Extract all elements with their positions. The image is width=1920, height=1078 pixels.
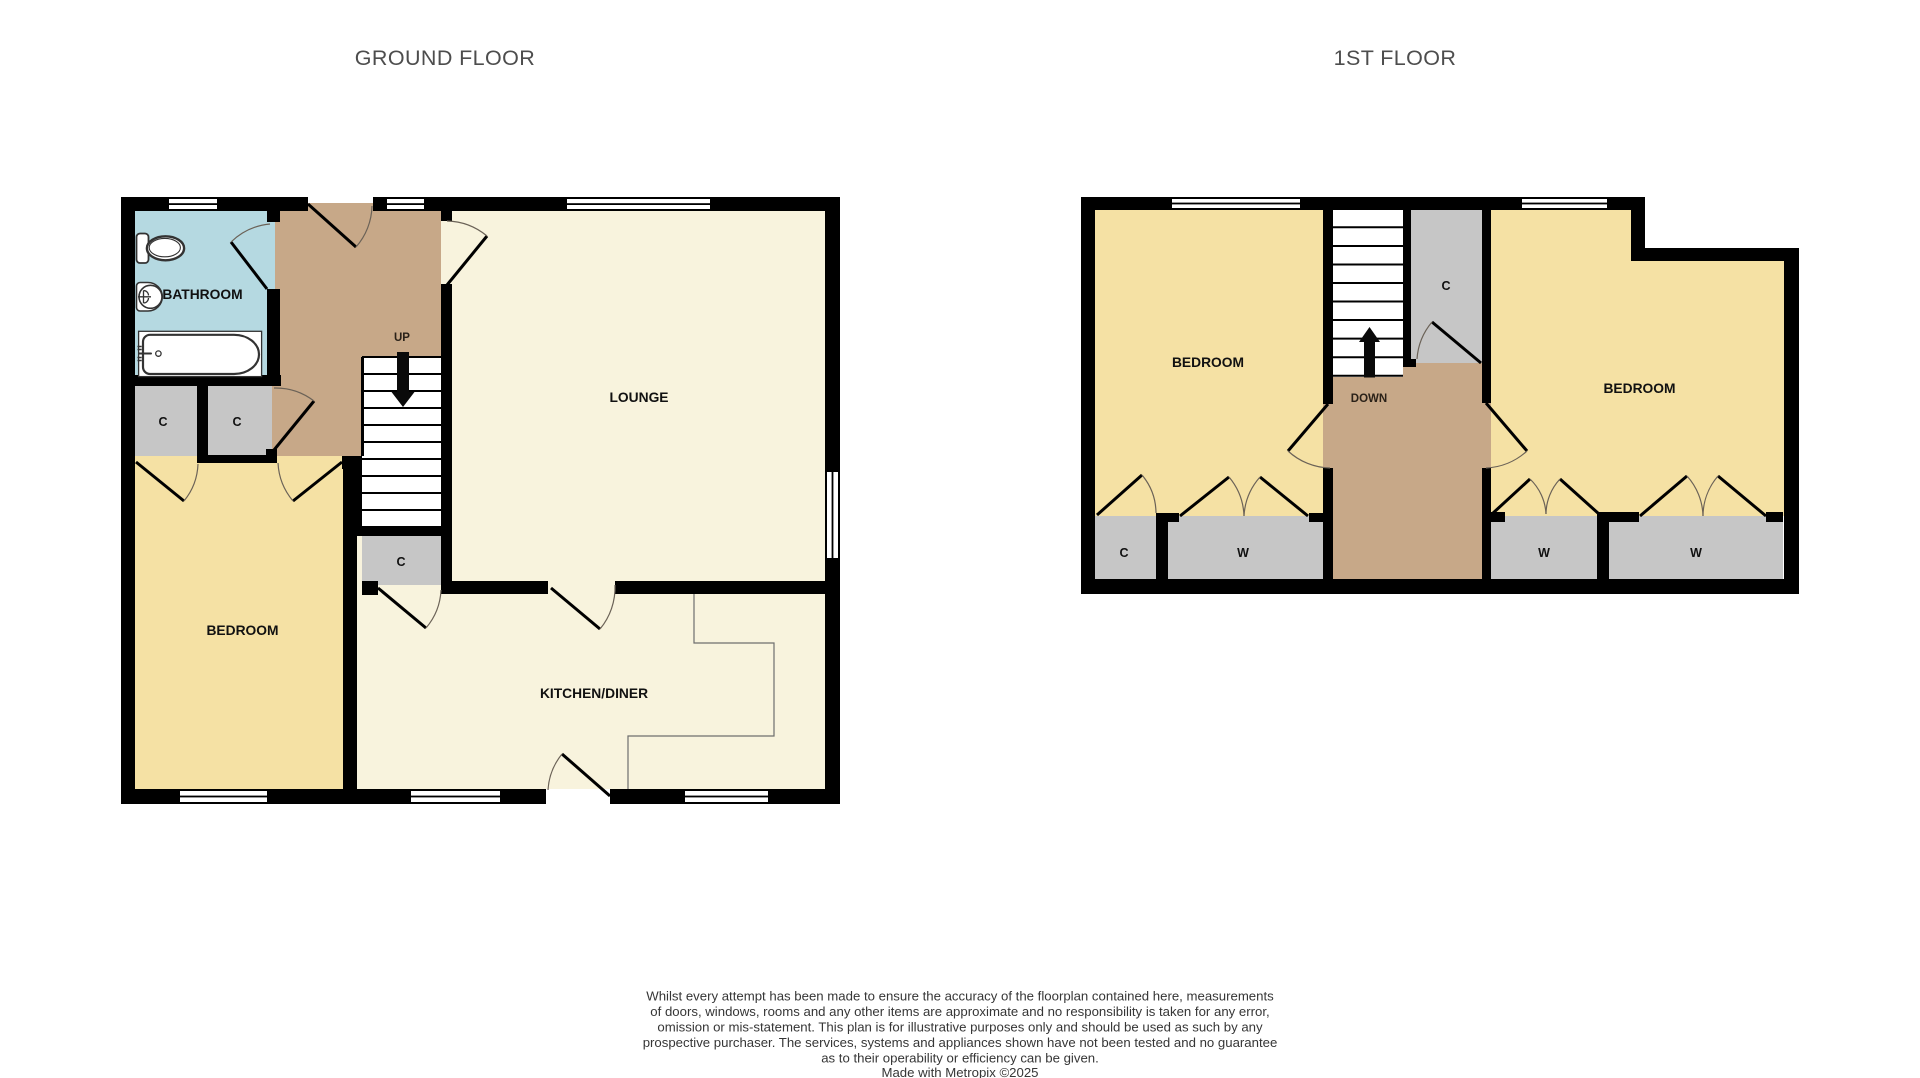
svg-text:BATHROOM: BATHROOM [162, 287, 242, 302]
svg-text:C: C [396, 555, 405, 569]
svg-text:C: C [232, 415, 241, 429]
svg-text:C: C [158, 415, 167, 429]
svg-text:W: W [1690, 546, 1702, 560]
svg-text:prospective purchaser. The ser: prospective purchaser. The services, sys… [643, 1035, 1278, 1050]
svg-text:Whilst every attempt has been: Whilst every attempt has been made to en… [646, 989, 1274, 1004]
svg-text:GROUND FLOOR: GROUND FLOOR [355, 46, 535, 70]
svg-text:W: W [1538, 546, 1550, 560]
svg-text:BEDROOM: BEDROOM [206, 623, 278, 638]
svg-text:Made with Metropix ©2025: Made with Metropix ©2025 [881, 1065, 1038, 1078]
svg-text:of doors, windows, rooms and a: of doors, windows, rooms and any other i… [650, 1004, 1269, 1019]
svg-text:W: W [1237, 546, 1249, 560]
svg-text:BEDROOM: BEDROOM [1603, 381, 1675, 396]
svg-text:UP: UP [394, 332, 410, 344]
svg-text:KITCHEN/DINER: KITCHEN/DINER [540, 686, 648, 701]
svg-text:DOWN: DOWN [1351, 393, 1387, 405]
svg-text:C: C [1119, 546, 1128, 560]
svg-text:as to their operability or eff: as to their operability or efficiency ca… [821, 1050, 1099, 1065]
svg-text:1ST FLOOR: 1ST FLOOR [1334, 46, 1457, 70]
svg-text:BEDROOM: BEDROOM [1172, 355, 1244, 370]
svg-text:LOUNGE: LOUNGE [609, 390, 668, 405]
svg-text:C: C [1441, 279, 1450, 293]
svg-text:omission or mis-statement. Thi: omission or mis-statement. This plan is … [657, 1020, 1263, 1035]
